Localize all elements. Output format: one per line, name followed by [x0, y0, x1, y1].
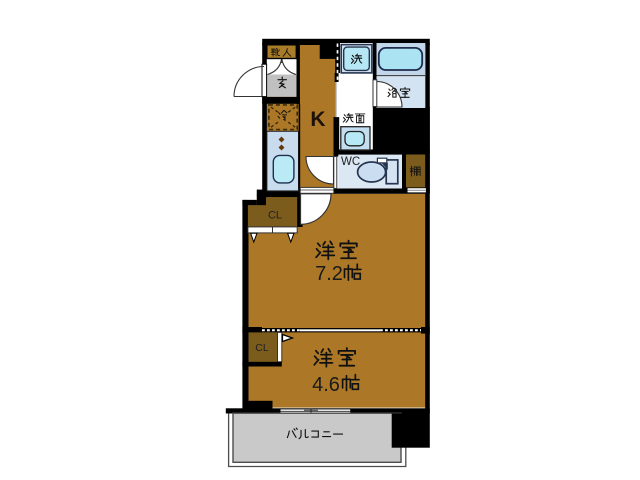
svg-text:4.6: 4.6	[312, 374, 340, 396]
svg-text:CL: CL	[268, 209, 282, 221]
svg-text:7.2: 7.2	[315, 263, 343, 285]
svg-text:K: K	[310, 108, 325, 131]
svg-text:CL: CL	[255, 342, 269, 354]
svg-text:WC: WC	[341, 156, 360, 168]
